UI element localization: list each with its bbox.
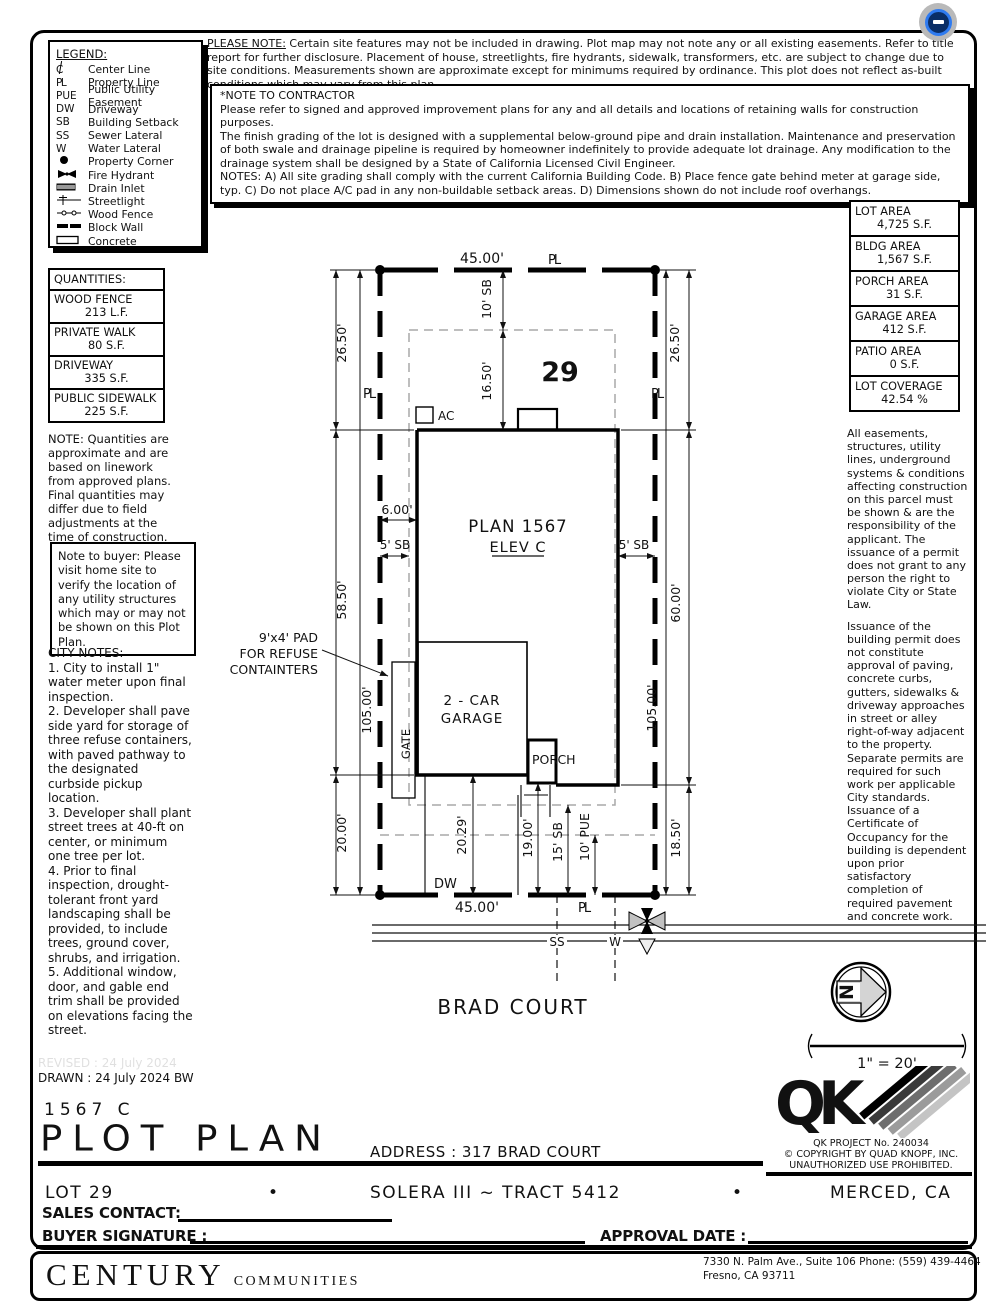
legend-item: CCenter Line: [56, 63, 195, 76]
svg-text:60.00': 60.00': [668, 583, 683, 622]
city-notes-title: CITY NOTES:: [48, 646, 193, 661]
quantities-note: NOTE: Quantities are approximate and are…: [48, 432, 180, 544]
svg-text:16.50': 16.50': [479, 361, 494, 400]
ac-pad: [416, 407, 433, 423]
divider: [38, 1161, 763, 1166]
legend-item: Wood Fence: [56, 208, 195, 221]
svg-text:10' PUE: 10' PUE: [577, 813, 592, 861]
svg-text:6.00': 6.00': [381, 502, 412, 517]
legend-item: Streetlight: [56, 195, 195, 208]
contractor-note-line: NOTES: A) All site grading shall comply …: [220, 170, 960, 197]
buyer-signature-label: BUYER SIGNATURE :: [42, 1227, 207, 1245]
svg-text:20.29': 20.29': [454, 815, 469, 854]
svg-text:105.00': 105.00': [359, 686, 374, 733]
scale-bar: [809, 1034, 966, 1058]
legend-item: DWDriveway: [56, 103, 195, 116]
plan-name: PLAN 1567: [468, 517, 567, 536]
bullet: •: [732, 1183, 744, 1203]
page-title: PLOT PLAN: [40, 1118, 332, 1159]
pl-symbol: PL: [548, 253, 562, 268]
sales-contact-line[interactable]: [178, 1219, 392, 1222]
concrete-icon: [56, 234, 88, 249]
address: ADDRESS : 317 BRAD COURT: [370, 1143, 601, 1161]
centerline-symbol: C: [56, 64, 88, 76]
city-label: MERCED, CA: [830, 1183, 951, 1203]
svg-text:10' SB: 10' SB: [479, 279, 494, 319]
pl-symbol: PL: [578, 901, 592, 916]
quantities-title: QUANTITIES:: [50, 270, 163, 291]
fire-hydrant-symbol: [629, 908, 665, 954]
rear-bump: [518, 409, 557, 430]
table-row: DRIVEWAY335 S.F.: [50, 357, 163, 390]
buyer-note-box: Note to buyer: Please visit home site to…: [50, 542, 196, 656]
pl-symbol: PL: [651, 387, 665, 402]
elevation: ELEV C: [489, 540, 546, 556]
sales-contact-label: SALES CONTACT:: [42, 1204, 181, 1222]
svg-text:5' SB: 5' SB: [619, 538, 650, 552]
contractor-note-title: *NOTE TO CONTRACTOR: [220, 89, 960, 103]
brand-name: CENTURY: [46, 1257, 226, 1293]
north-arrow: N: [832, 963, 890, 1021]
sewer-lateral-label: SS: [549, 935, 564, 949]
driveway-label: DW: [434, 877, 457, 892]
legend-item: SSSewer Lateral: [56, 129, 195, 142]
table-row: PUBLIC SIDEWALK225 S.F.: [50, 390, 163, 421]
svg-text:105.00': 105.00': [644, 684, 659, 731]
brand-address: 7330 N. Palm Ave., Suite 106 Phone: (559…: [703, 1256, 981, 1283]
tract-label: SOLERA III ~ TRACT 5412: [370, 1183, 621, 1203]
porch-label: PORCH: [532, 752, 576, 767]
approval-date-line[interactable]: [748, 1241, 968, 1244]
svg-text:2 - CAR: 2 - CAR: [443, 693, 500, 709]
legend-item: Concrete: [56, 234, 195, 247]
city-notes: CITY NOTES: 1. City to install 1" water …: [48, 646, 193, 1038]
svg-text:20.00': 20.00': [334, 813, 349, 852]
table-row: PRIVATE WALK80 S.F.: [50, 324, 163, 357]
divider: [766, 1172, 972, 1176]
north-label: N: [836, 984, 858, 1000]
legend-item: Block Wall: [56, 221, 195, 234]
pl-symbol: PL: [363, 387, 377, 402]
street-lines: [372, 925, 986, 941]
please-note-label: PLEASE NOTE:: [207, 37, 286, 50]
please-note: PLEASE NOTE: Certain site features may n…: [207, 37, 957, 91]
svg-text:45.00': 45.00': [460, 251, 504, 267]
lot-number: 29: [541, 357, 579, 388]
city-note-item: 4. Prior to final inspection, drought-to…: [48, 864, 193, 966]
svg-text:15' SB: 15' SB: [550, 822, 565, 862]
buyer-signature-line[interactable]: [190, 1241, 585, 1244]
legend-box: LEGEND: CCenter Line PLProperty Line PUE…: [48, 40, 203, 248]
bullet: •: [268, 1183, 280, 1203]
divider: [36, 1245, 972, 1249]
revised-date: REVISED : 24 July 2024: [38, 1056, 177, 1070]
lot-label: LOT 29: [45, 1183, 114, 1203]
city-note-item: 3. Developer shall plant street trees at…: [48, 806, 193, 864]
approval-date-label: APPROVAL DATE :: [600, 1227, 746, 1245]
street-name: BRAD COURT: [437, 995, 588, 1019]
legend-item: WWater Lateral: [56, 142, 195, 155]
setback-envelope: [409, 330, 615, 805]
city-note-item: 1. City to install 1" water meter upon f…: [48, 661, 193, 705]
legend-item: SBBuilding Setback: [56, 116, 195, 129]
table-row: WOOD FENCE213 L.F.: [50, 291, 163, 324]
svg-text:58.50': 58.50': [334, 580, 349, 619]
gate-label: GATE: [399, 729, 413, 759]
svg-text:CONTAINTERS: CONTAINTERS: [230, 662, 318, 677]
qk-logo-text: QK: [775, 1069, 867, 1138]
svg-text:26.50': 26.50': [334, 323, 349, 362]
legend-item: Fire Hydrant: [56, 169, 195, 182]
brand-suffix: COMMUNITIES: [234, 1274, 360, 1290]
svg-text:19.00': 19.00': [520, 818, 535, 857]
contractor-note-line: Please refer to signed and approved impr…: [220, 103, 960, 130]
legend-title: LEGEND:: [56, 47, 195, 61]
svg-text:26.50': 26.50': [667, 323, 682, 362]
annotation-badge[interactable]: [919, 3, 957, 41]
legend-item: Drain Inlet: [56, 182, 195, 195]
svg-text:45.00': 45.00': [455, 900, 499, 916]
ac-label: AC: [438, 409, 454, 423]
plot-plan-drawing: SS W: [230, 248, 990, 1072]
contractor-note-box: *NOTE TO CONTRACTOR Please refer to sign…: [210, 84, 970, 204]
svg-text:GARAGE: GARAGE: [441, 711, 504, 727]
property-line-symbol: PL: [56, 77, 88, 89]
qk-caption: QK PROJECT No. 240034 © COPYRIGHT BY QUA…: [768, 1138, 974, 1171]
contractor-note-line: The finish grading of the lot is designe…: [220, 130, 960, 171]
svg-text:5' SB: 5' SB: [380, 538, 411, 552]
legend-item: Property Corner: [56, 155, 195, 168]
legend-item: PUEPublic Utility Easement: [56, 89, 195, 102]
qk-logo: QK: [775, 1066, 970, 1138]
drawn-date: DRAWN : 24 July 2024 BW: [38, 1071, 194, 1085]
water-lateral-label: W: [609, 935, 621, 949]
city-note-item: 2. Developer shall pave side yard for st…: [48, 704, 193, 806]
brand-logo: CENTURY COMMUNITIES: [46, 1257, 360, 1293]
quantities-table: QUANTITIES: WOOD FENCE213 L.F. PRIVATE W…: [48, 268, 165, 423]
city-note-item: 5. Additional window, door, and gable en…: [48, 965, 193, 1038]
svg-text:FOR REFUSE: FOR REFUSE: [240, 646, 319, 661]
plan-code: 1567 C: [44, 1100, 135, 1120]
table-row: LOT AREA4,725 S.F.: [851, 202, 958, 237]
svg-text:9'x4' PAD: 9'x4' PAD: [259, 630, 318, 645]
svg-text:18.50': 18.50': [668, 818, 683, 857]
minimize-icon: [925, 9, 952, 36]
